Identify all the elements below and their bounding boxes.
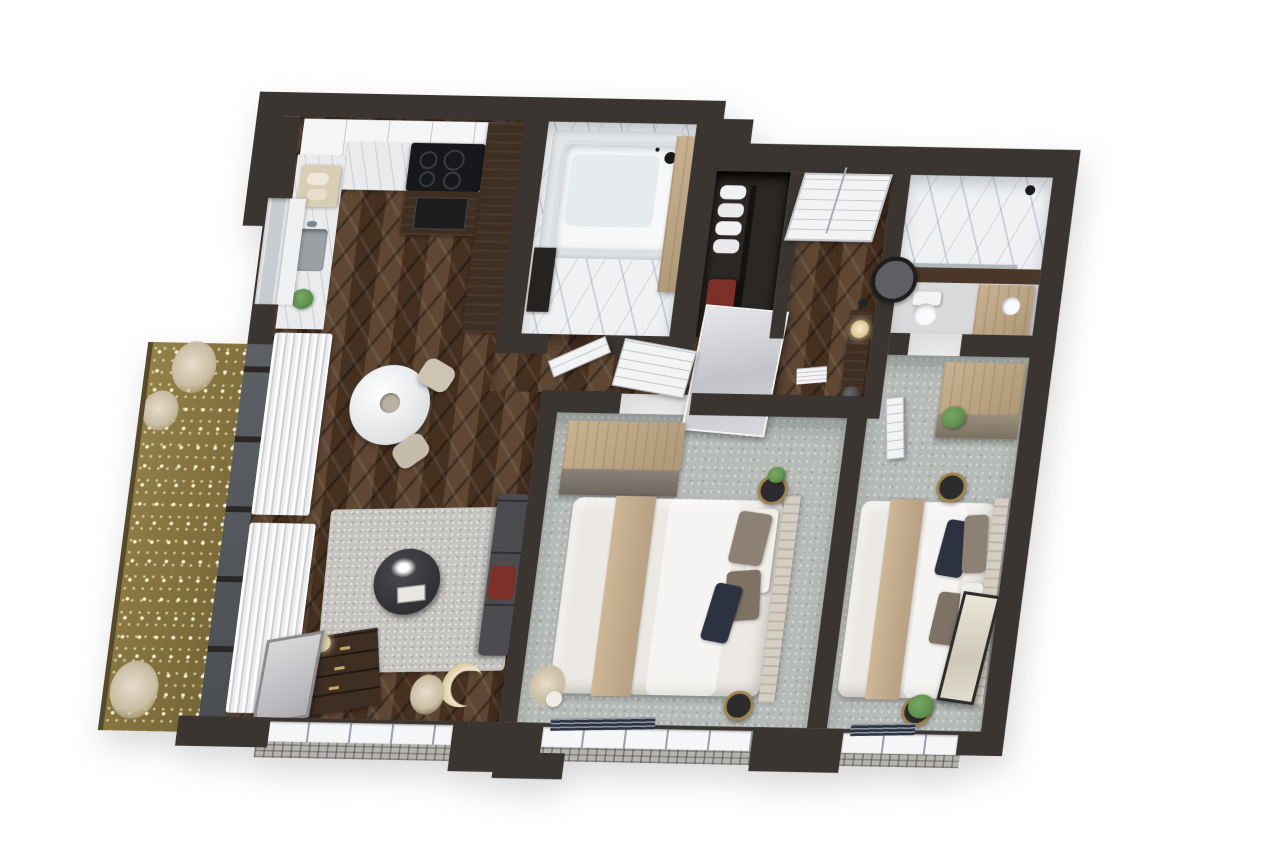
bedroom1-wardrobe-front [559,469,680,497]
bottom-wall-pier-1b [492,752,565,779]
coral-decor [389,557,418,578]
bedroom2-window-blinds [850,723,915,736]
bath2-bottom-wall [888,333,911,355]
hall-book-stack [796,366,827,384]
bathtub-water [563,154,660,228]
towel-shelf [717,203,745,218]
towel-shelf [715,221,743,236]
bedroom2-window-sill [834,753,960,768]
oven-front [413,197,469,230]
living-window-sill [254,741,456,761]
bedroom2-window [841,733,959,755]
bed2-taupe-pillow [961,514,989,573]
floor-plan-stage [0,0,1280,850]
bath2-bottom-wall-2 [960,334,1057,358]
towel-shelf [712,239,740,254]
book-decor [397,584,425,603]
bottom-wall-pier-2 [748,727,844,773]
bedroom1-window-blinds [550,717,656,731]
bread-decor-2 [306,189,327,200]
bed1-runner [591,496,657,697]
bedroom2-open-door [886,396,905,460]
bottom-wall-corner-left [175,716,271,748]
sink-faucet-icon [307,221,318,227]
bread-decor [306,173,330,185]
bedroom1-bed [549,497,784,697]
bath2-dark-wood-panel [903,267,1041,285]
towel-shelf [719,185,747,200]
bath1-bottom-wall-left [495,333,550,354]
red-throw-pillow [487,565,517,600]
apartment-plan [196,92,1081,758]
bedroom1-wardrobe [562,421,686,471]
